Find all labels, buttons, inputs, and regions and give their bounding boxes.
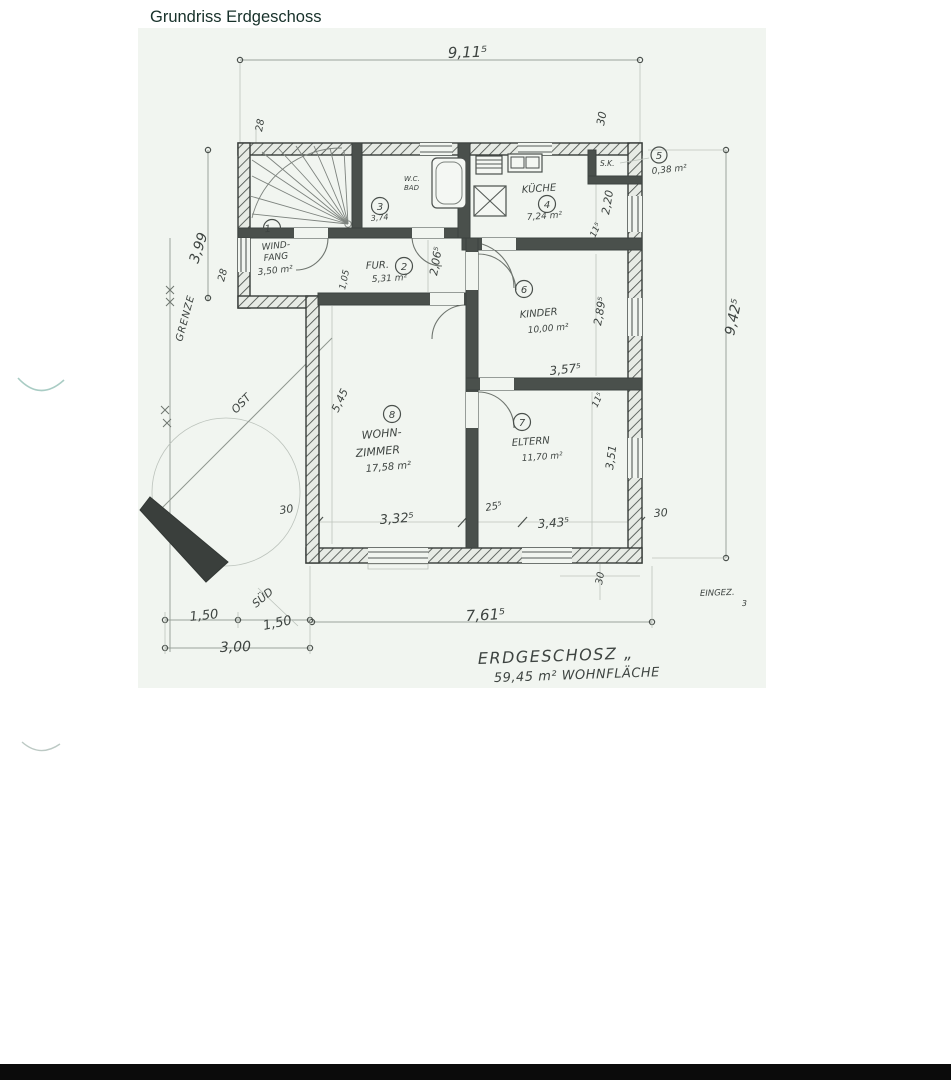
- eingez-note: EINGEZ.: [700, 588, 735, 599]
- scan-artifacts: [18, 378, 64, 751]
- scan-area: [138, 28, 766, 688]
- room-2-name: FUR.: [366, 260, 390, 272]
- bathtub: [432, 158, 466, 208]
- eingez-note-2: 3: [742, 599, 747, 608]
- room-3-name2: BAD: [404, 184, 420, 192]
- room-5-number: 5: [656, 151, 662, 162]
- dim-wall-tr: 30: [594, 110, 609, 126]
- scanned-floor-plan-page: Grundriss Erdgeschoss: [0, 0, 951, 1080]
- page-title: Grundriss Erdgeschoss: [150, 8, 322, 26]
- room-2-area: 5,31 m²: [372, 273, 408, 285]
- dim-wall-bl: 30: [279, 502, 295, 517]
- scan-bottom-edge: [0, 1064, 951, 1080]
- shaft-x-box: [474, 186, 506, 216]
- window-left-windfang: [238, 238, 250, 272]
- room-3-number: 3: [377, 202, 383, 213]
- room-7-number: 7: [519, 418, 526, 429]
- dim-bottom: 7,61⁵: [465, 605, 505, 625]
- dim-300: 3,00: [220, 639, 252, 656]
- window-right-kinder: [628, 298, 642, 336]
- room-6-number: 6: [521, 285, 527, 296]
- dim-living-width: 3,32⁵: [379, 511, 414, 528]
- room-2-number: 2: [401, 262, 407, 273]
- room-8-number: 8: [389, 410, 395, 421]
- dim-top: 9,11⁵: [448, 43, 488, 62]
- room-3-name1: W.C.: [404, 175, 420, 183]
- window-right-kitchen: [628, 196, 642, 232]
- dim-parents-width: 3,43⁵: [537, 515, 570, 531]
- room-3-area: 3,74: [370, 212, 389, 223]
- dim-wall-bb: 30: [594, 571, 607, 585]
- dim-150a: 1,50: [189, 607, 219, 625]
- dim-top-offset: 28: [254, 118, 267, 132]
- window-top-kitchen: [518, 143, 552, 155]
- radiator: [476, 156, 502, 174]
- dim-wall-br: 30: [653, 506, 668, 520]
- room-4-number: 4: [544, 200, 550, 211]
- window-bottom-eltern: [522, 548, 572, 563]
- kitchen-sink: [508, 154, 542, 172]
- window-right-eltern: [628, 438, 642, 478]
- floor-plan-svg: Grundriss Erdgeschoss: [0, 0, 951, 1080]
- room-1-number: 1: [264, 224, 271, 236]
- room-5-name: S.K.: [600, 159, 614, 168]
- window-top-bath: [420, 143, 452, 155]
